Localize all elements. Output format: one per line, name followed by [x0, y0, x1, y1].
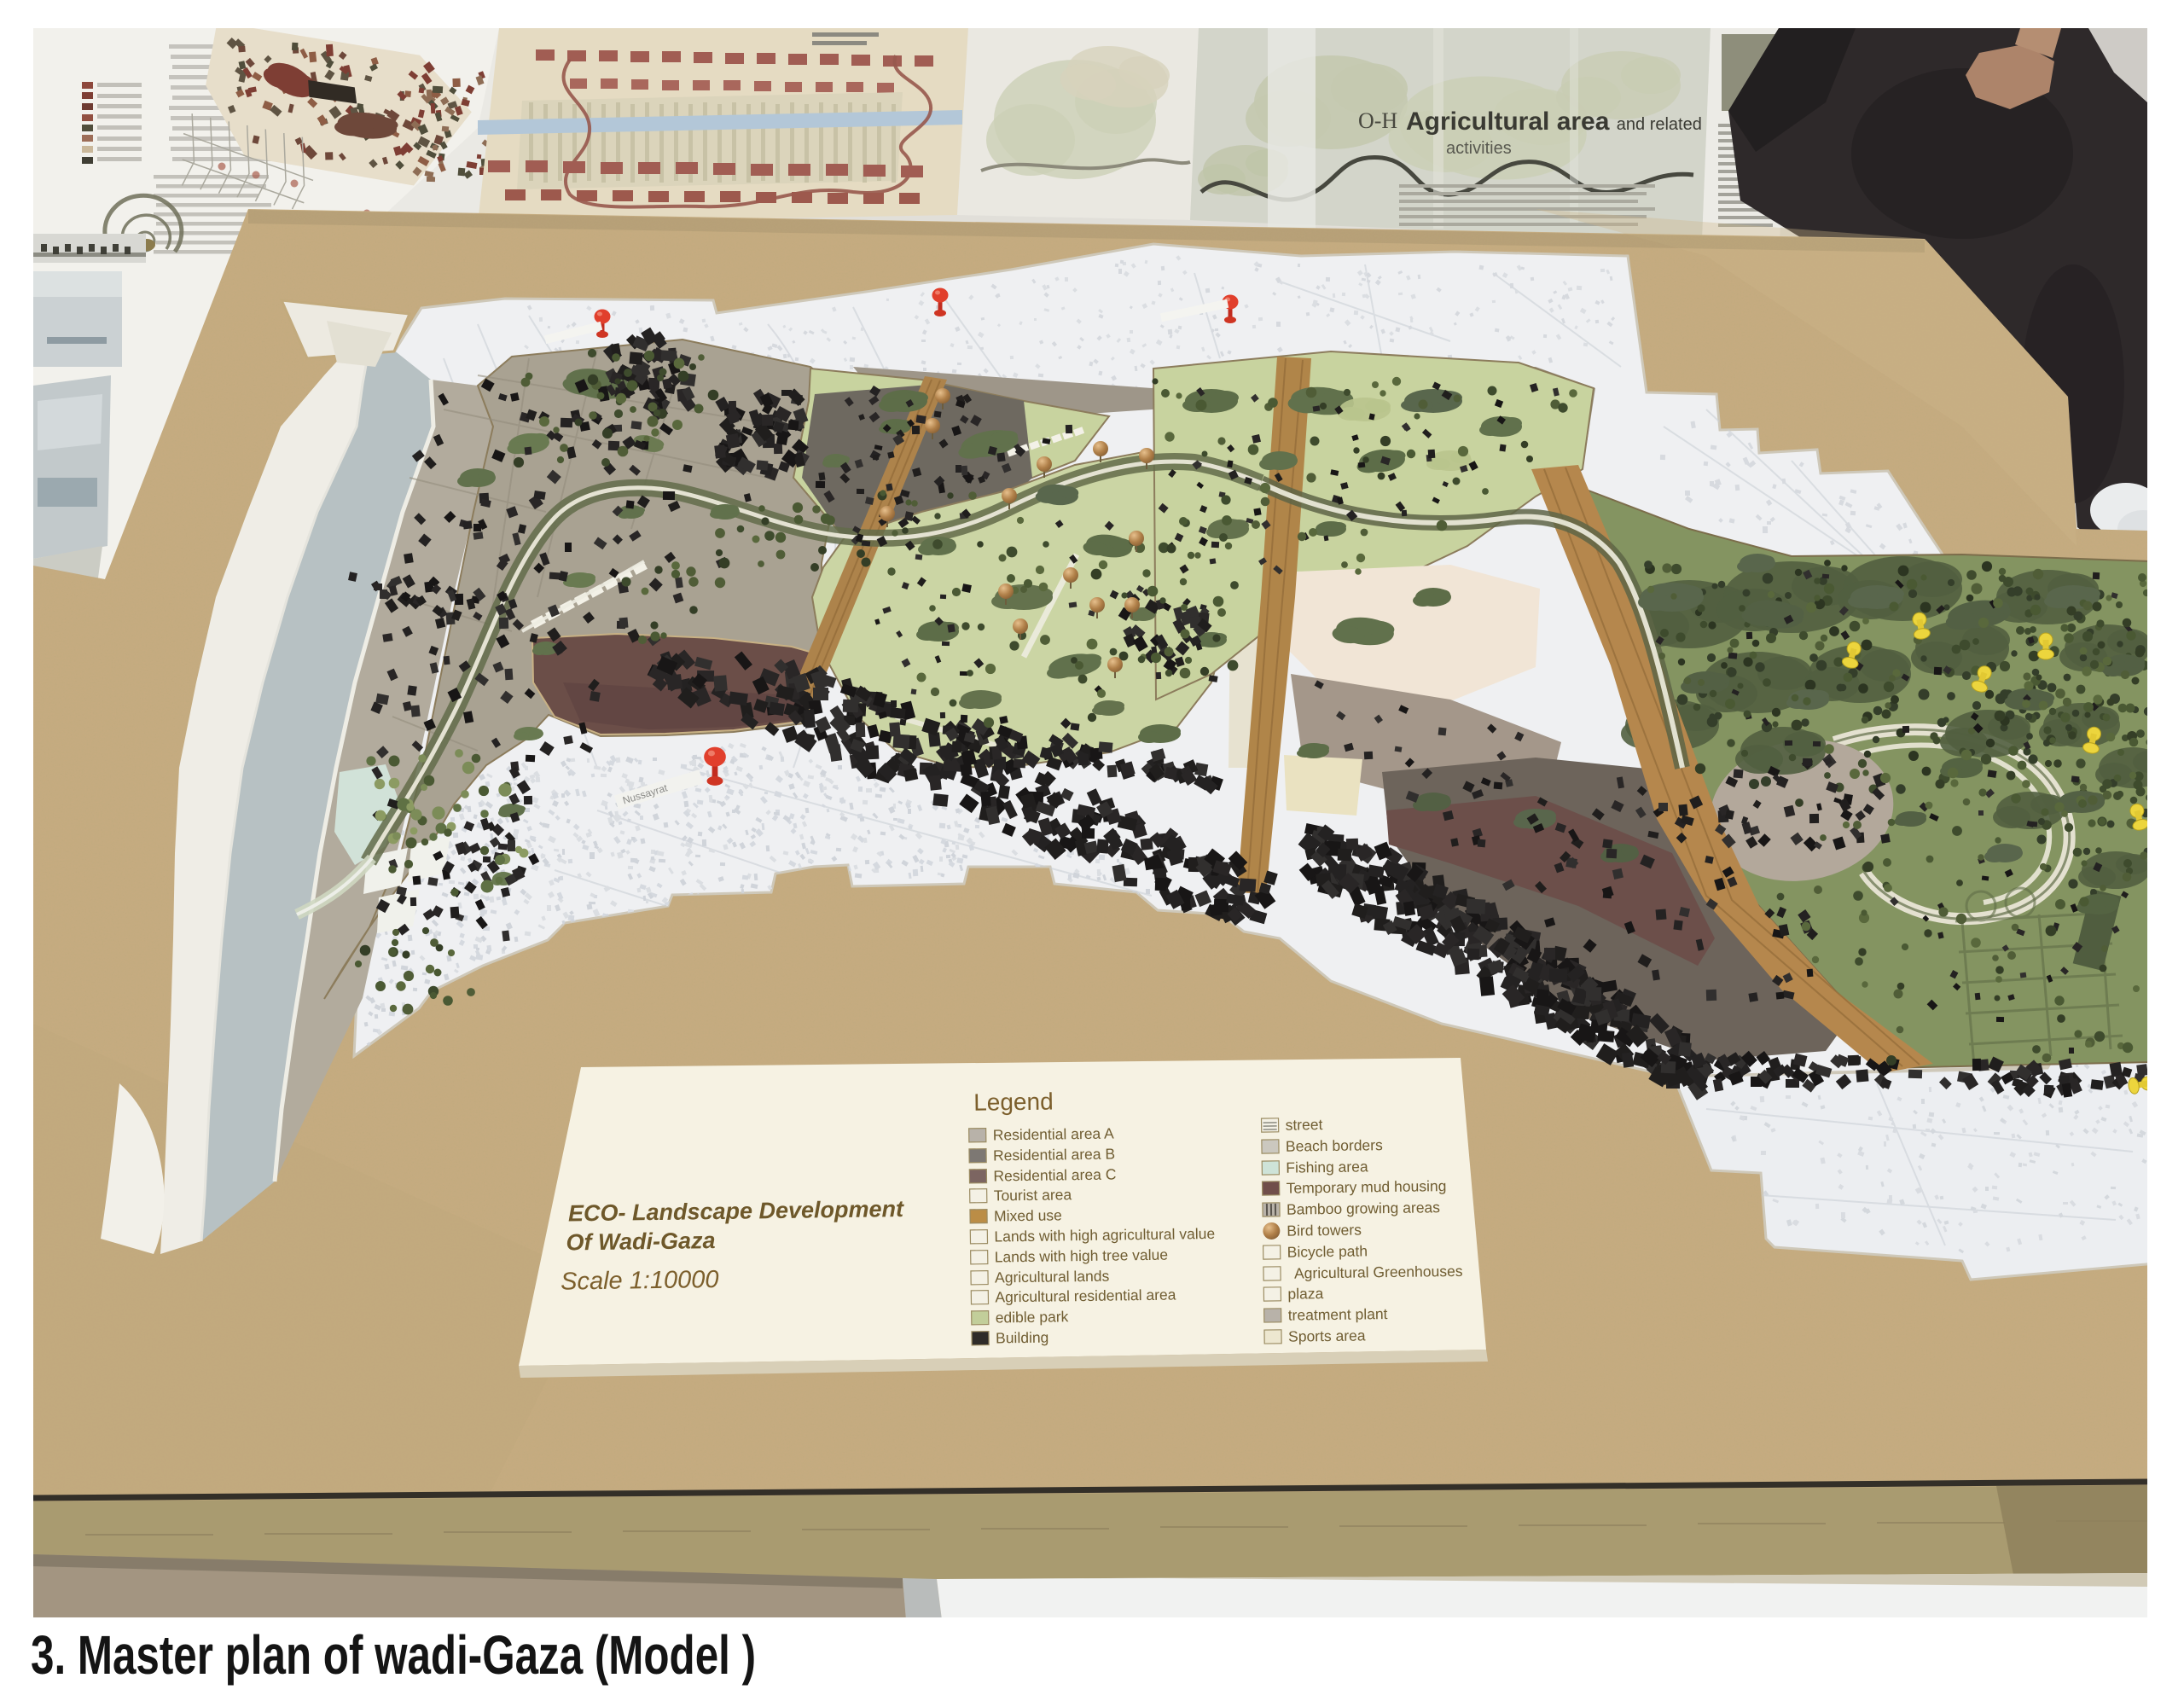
svg-text:3. Master plan of wadi-Gaza (M: 3. Master plan of wadi-Gaza (Model ) [31, 1624, 756, 1686]
